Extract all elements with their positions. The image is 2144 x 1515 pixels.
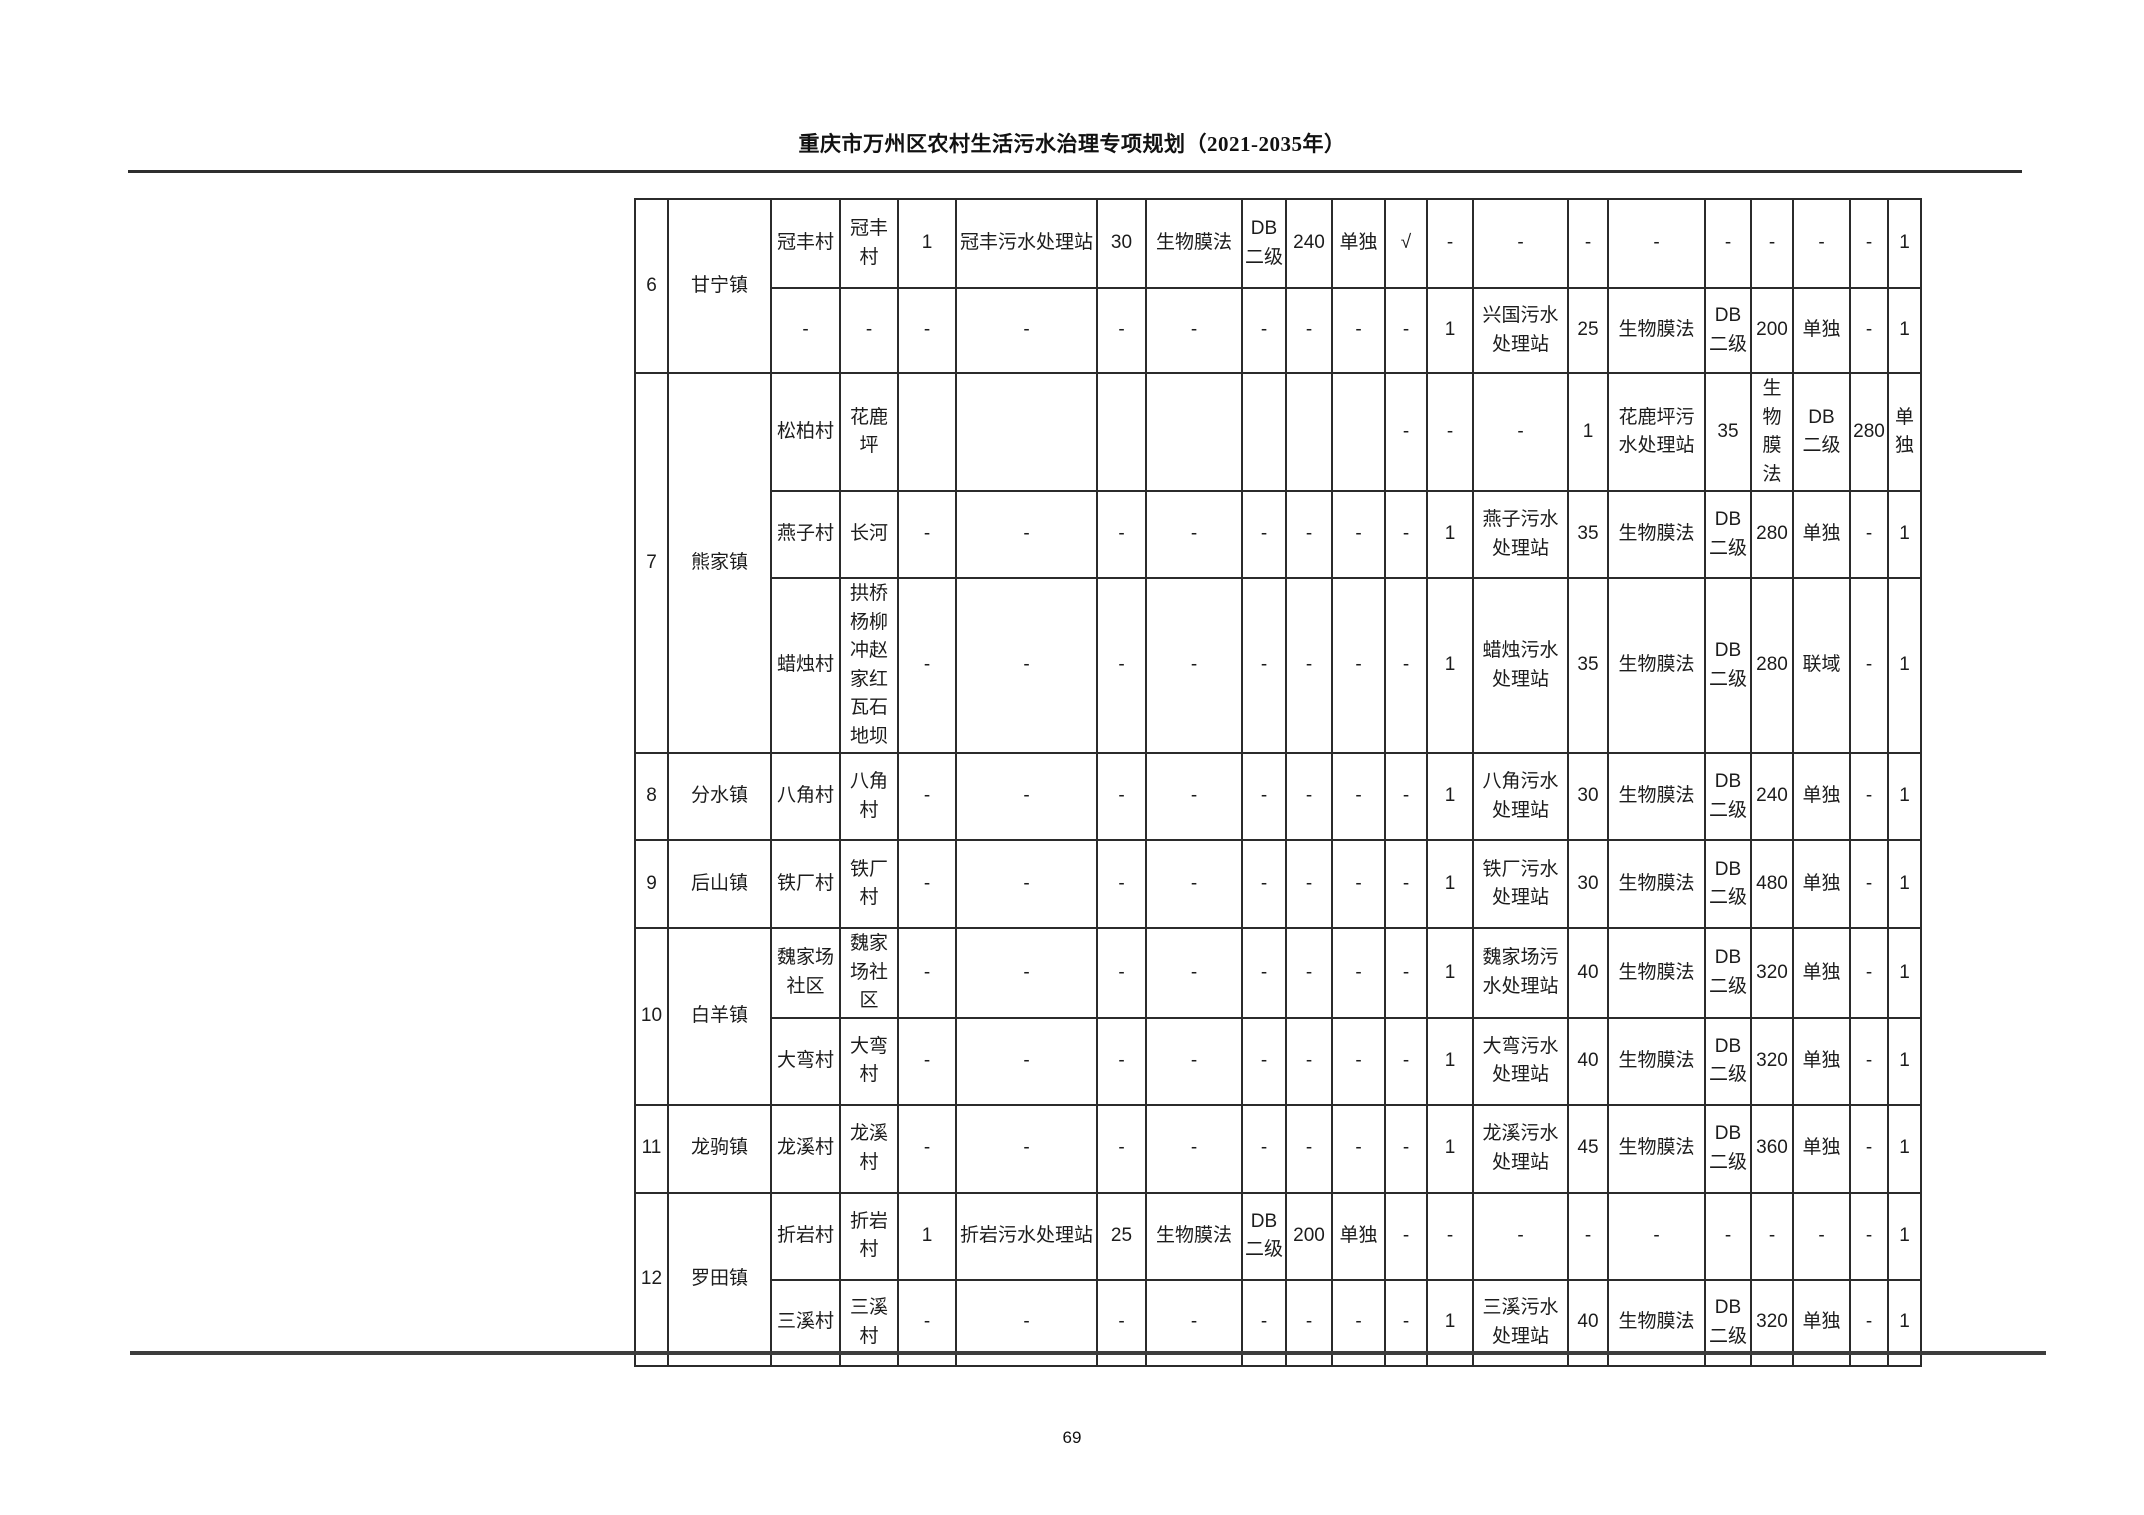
table-cell: - — [1385, 1018, 1427, 1105]
table-cell: - — [1146, 1018, 1242, 1105]
table-cell: - — [1705, 1193, 1751, 1280]
table-row: 7熊家镇松柏村花鹿坪---1花鹿坪污水处理站35生物膜法DB 二级280单独 — [635, 373, 1921, 491]
table-cell: - — [898, 288, 956, 373]
table-cell: - — [1473, 1193, 1568, 1280]
table-cell: - — [1097, 1105, 1146, 1193]
table-cell: - — [1146, 491, 1242, 578]
table-cell: 松柏村 — [771, 373, 840, 491]
table-cell: - — [956, 840, 1097, 928]
table-cell — [1286, 373, 1332, 491]
table-cell: 生物膜法 — [1608, 840, 1705, 928]
table-cell: 生物膜法 — [1146, 199, 1242, 288]
table-cell: DB 二级 — [1705, 491, 1751, 578]
town-cell: 分水镇 — [668, 753, 771, 840]
table-cell: - — [1332, 753, 1385, 840]
table-cell: 1 — [1427, 491, 1473, 578]
table-cell: - — [1427, 1193, 1473, 1280]
table-cell — [1242, 373, 1286, 491]
table-cell: 折岩污水处理站 — [956, 1193, 1097, 1280]
table-cell — [1332, 373, 1385, 491]
table-cell: 冠丰村 — [771, 199, 840, 288]
table-cell: 1 — [898, 1193, 956, 1280]
table-cell: DB 二级 — [1705, 578, 1751, 753]
table-cell: 1 — [1888, 578, 1921, 753]
table-row: 蜡烛村拱桥杨柳冲赵家红瓦石地坝--------1蜡烛污水处理站35生物膜法DB … — [635, 578, 1921, 753]
table-cell: 单独 — [1793, 1018, 1850, 1105]
table-cell: 35 — [1568, 491, 1608, 578]
table-cell: 花鹿坪污水处理站 — [1608, 373, 1705, 491]
table-cell: 1 — [1888, 288, 1921, 373]
table-cell: - — [1242, 928, 1286, 1018]
table-cell: - — [1332, 288, 1385, 373]
table-cell: - — [1286, 753, 1332, 840]
town-cell: 后山镇 — [668, 840, 771, 928]
table-cell: - — [1850, 840, 1888, 928]
table-cell: - — [1427, 373, 1473, 491]
table-cell: 单独 — [1793, 288, 1850, 373]
table-cell: 龙溪村 — [771, 1105, 840, 1193]
table-cell: - — [1332, 1105, 1385, 1193]
table-cell: 280 — [1751, 491, 1793, 578]
table-cell: - — [1097, 1018, 1146, 1105]
table-cell: - — [1146, 840, 1242, 928]
table-cell: 480 — [1751, 840, 1793, 928]
table-row: 9后山镇铁厂村铁厂村--------1铁厂污水处理站30生物膜法DB 二级480… — [635, 840, 1921, 928]
town-cell: 罗田镇 — [668, 1193, 771, 1366]
table-cell: - — [771, 288, 840, 373]
table-row: 6甘宁镇冠丰村冠丰村1冠丰污水处理站30生物膜法DB 二级240单独√-----… — [635, 199, 1921, 288]
table-cell: - — [956, 1018, 1097, 1105]
row-number-cell: 9 — [635, 840, 668, 928]
table-cell: - — [1385, 1105, 1427, 1193]
row-number-cell: 8 — [635, 753, 668, 840]
table-cell: - — [1850, 1193, 1888, 1280]
table-cell: - — [956, 1105, 1097, 1193]
table-cell: - — [1427, 199, 1473, 288]
table-cell: 魏家场污水处理站 — [1473, 928, 1568, 1018]
table-cell: 铁厂村 — [840, 840, 898, 928]
table-cell: 单独 — [1793, 1105, 1850, 1193]
table-cell: 1 — [1888, 928, 1921, 1018]
table-cell: - — [1608, 1193, 1705, 1280]
table-cell: 单独 — [1793, 928, 1850, 1018]
table-row: 11龙驹镇龙溪村龙溪村--------1龙溪污水处理站45生物膜法DB 二级36… — [635, 1105, 1921, 1193]
page-number: 69 — [0, 1428, 2144, 1448]
table-cell: - — [898, 928, 956, 1018]
table-cell: 魏家场社区 — [840, 928, 898, 1018]
table-cell: - — [956, 288, 1097, 373]
table-cell: - — [956, 578, 1097, 753]
table-cell: 长河 — [840, 491, 898, 578]
table-cell: 单独 — [1793, 753, 1850, 840]
table-cell: 单独 — [1793, 840, 1850, 928]
table-cell: - — [1793, 199, 1850, 288]
table-cell: DB 二级 — [1242, 1193, 1286, 1280]
table-cell: - — [1242, 491, 1286, 578]
table-cell: 联域 — [1793, 578, 1850, 753]
table-cell: 1 — [1888, 491, 1921, 578]
table-cell: 1 — [1568, 373, 1608, 491]
table-row: 12罗田镇折岩村折岩村1折岩污水处理站25生物膜法DB 二级200单独-----… — [635, 1193, 1921, 1280]
table-cell: - — [1332, 1018, 1385, 1105]
table-cell: 1 — [1427, 1105, 1473, 1193]
table-cell: DB 二级 — [1705, 1105, 1751, 1193]
table-cell: 铁厂村 — [771, 840, 840, 928]
table-cell: √ — [1385, 199, 1427, 288]
table-cell: DB 二级 — [1242, 199, 1286, 288]
table-cell: - — [898, 1105, 956, 1193]
table-cell: 1 — [1427, 288, 1473, 373]
table-cell: - — [1385, 1193, 1427, 1280]
table-row: 10白羊镇魏家场社区魏家场社区--------1魏家场污水处理站40生物膜法DB… — [635, 928, 1921, 1018]
table-cell: 龙溪污水处理站 — [1473, 1105, 1568, 1193]
table-cell: - — [1850, 928, 1888, 1018]
sewage-plan-table: 6甘宁镇冠丰村冠丰村1冠丰污水处理站30生物膜法DB 二级240单独√-----… — [634, 198, 1922, 1367]
table-cell: - — [1097, 578, 1146, 753]
table-cell: 45 — [1568, 1105, 1608, 1193]
document-page: 重庆市万州区农村生活污水治理专项规划（2021-2035年） 6甘宁镇冠丰村冠丰… — [0, 0, 2144, 1515]
table-cell: - — [1332, 928, 1385, 1018]
table-cell: - — [1286, 288, 1332, 373]
table-cell: 大弯村 — [840, 1018, 898, 1105]
table-cell: 冠丰村 — [840, 199, 898, 288]
table-cell: 1 — [1427, 840, 1473, 928]
table-cell: 生物膜法 — [1608, 928, 1705, 1018]
footer-rule — [130, 1351, 2046, 1355]
table-cell: - — [1146, 753, 1242, 840]
table-cell: 1 — [1888, 840, 1921, 928]
row-number-cell: 10 — [635, 928, 668, 1105]
table-cell: - — [1473, 199, 1568, 288]
table-cell: 生物膜法 — [1608, 1105, 1705, 1193]
table-row: 大弯村大弯村--------1大弯污水处理站40生物膜法DB 二级320单独-1 — [635, 1018, 1921, 1105]
table-cell: 30 — [1097, 199, 1146, 288]
table-row: 燕子村长河--------1燕子污水处理站35生物膜法DB 二级280单独-1 — [635, 491, 1921, 578]
table-cell: - — [1850, 199, 1888, 288]
table-cell: 280 — [1850, 373, 1888, 491]
table-cell: - — [1705, 199, 1751, 288]
table-cell: 1 — [1888, 1193, 1921, 1280]
table-cell: 35 — [1705, 373, 1751, 491]
table-cell: DB 二级 — [1705, 753, 1751, 840]
table-cell: DB 二级 — [1705, 288, 1751, 373]
table-cell: - — [1568, 199, 1608, 288]
table-cell: 40 — [1568, 1018, 1608, 1105]
table-cell: DB 二级 — [1705, 928, 1751, 1018]
document-title: 重庆市万州区农村生活污水治理专项规划（2021-2035年） — [0, 128, 2144, 158]
table-cell: 1 — [1888, 1018, 1921, 1105]
table-cell: - — [1242, 840, 1286, 928]
table-cell: - — [1385, 373, 1427, 491]
table-cell: - — [1242, 288, 1286, 373]
table-cell: 兴国污水处理站 — [1473, 288, 1568, 373]
table-cell: 1 — [1888, 753, 1921, 840]
table-cell: - — [1332, 578, 1385, 753]
table-cell: 1 — [1427, 928, 1473, 1018]
table-cell: 280 — [1751, 578, 1793, 753]
table-cell: - — [1242, 753, 1286, 840]
table-cell: 360 — [1751, 1105, 1793, 1193]
table-body: 6甘宁镇冠丰村冠丰村1冠丰污水处理站30生物膜法DB 二级240单独√-----… — [635, 199, 1921, 1366]
table-cell: - — [1385, 753, 1427, 840]
table-cell: 40 — [1568, 928, 1608, 1018]
header-rule — [128, 170, 2022, 173]
table-cell: - — [956, 753, 1097, 840]
table-cell: - — [1850, 288, 1888, 373]
table-cell — [1097, 373, 1146, 491]
table-cell: 生物膜法 — [1608, 491, 1705, 578]
table-cell: - — [1751, 1193, 1793, 1280]
table-cell: - — [1332, 840, 1385, 928]
table-cell: 燕子污水处理站 — [1473, 491, 1568, 578]
table-cell: - — [1332, 491, 1385, 578]
table-cell: - — [1850, 578, 1888, 753]
table-cell: 拱桥杨柳冲赵家红瓦石地坝 — [840, 578, 898, 753]
table-cell: - — [1385, 578, 1427, 753]
table-cell: - — [1850, 1105, 1888, 1193]
table-cell: - — [956, 491, 1097, 578]
table-cell: - — [1097, 753, 1146, 840]
town-cell: 甘宁镇 — [668, 199, 771, 373]
table-cell: 1 — [1427, 1018, 1473, 1105]
table-cell: 铁厂污水处理站 — [1473, 840, 1568, 928]
table-cell: - — [1473, 373, 1568, 491]
table-cell: - — [1097, 928, 1146, 1018]
table-cell: DB 二级 — [1705, 1018, 1751, 1105]
table-cell — [1146, 373, 1242, 491]
table-cell: 单独 — [1793, 491, 1850, 578]
town-cell: 熊家镇 — [668, 373, 771, 753]
town-cell: 龙驹镇 — [668, 1105, 771, 1193]
table-cell: 30 — [1568, 753, 1608, 840]
table-cell: - — [1608, 199, 1705, 288]
table-cell: - — [1385, 928, 1427, 1018]
table-cell: 冠丰污水处理站 — [956, 199, 1097, 288]
table-cell: 生物膜法 — [1751, 373, 1793, 491]
table-cell: - — [1242, 578, 1286, 753]
table-cell: - — [1850, 753, 1888, 840]
table-cell: - — [1286, 491, 1332, 578]
table-cell: 魏家场社区 — [771, 928, 840, 1018]
table-cell: 1 — [1888, 1105, 1921, 1193]
table-cell: 单独 — [1888, 373, 1921, 491]
table-cell: 1 — [1888, 199, 1921, 288]
town-cell: 白羊镇 — [668, 928, 771, 1105]
table-cell: 生物膜法 — [1608, 753, 1705, 840]
table-cell: 生物膜法 — [1608, 578, 1705, 753]
table-cell: 30 — [1568, 840, 1608, 928]
table-cell: 花鹿坪 — [840, 373, 898, 491]
table-cell: 1 — [1427, 753, 1473, 840]
table-cell: - — [1568, 1193, 1608, 1280]
table-cell: DB 二级 — [1793, 373, 1850, 491]
table-cell: 生物膜法 — [1608, 1018, 1705, 1105]
table-cell: 龙溪村 — [840, 1105, 898, 1193]
table-cell: - — [898, 1018, 956, 1105]
table-cell: 八角污水处理站 — [1473, 753, 1568, 840]
table-cell: DB 二级 — [1705, 840, 1751, 928]
table-cell: - — [1097, 491, 1146, 578]
table-cell: 大弯村 — [771, 1018, 840, 1105]
table-cell: - — [1146, 578, 1242, 753]
table-cell: 240 — [1286, 199, 1332, 288]
table-cell: - — [1146, 1105, 1242, 1193]
table-cell: - — [840, 288, 898, 373]
table-cell: 320 — [1751, 1018, 1793, 1105]
table-cell: - — [898, 753, 956, 840]
table-cell: - — [1286, 578, 1332, 753]
table-cell: - — [1286, 928, 1332, 1018]
table-cell: 大弯污水处理站 — [1473, 1018, 1568, 1105]
table-cell: 35 — [1568, 578, 1608, 753]
table-cell: - — [1146, 928, 1242, 1018]
table-cell: - — [1146, 288, 1242, 373]
table-cell: 单独 — [1332, 1193, 1385, 1280]
table-cell: - — [1286, 840, 1332, 928]
table-cell: - — [898, 840, 956, 928]
table-row: ----------1兴国污水处理站25生物膜法DB 二级200单独-1 — [635, 288, 1921, 373]
table-cell: - — [1850, 1018, 1888, 1105]
row-number-cell: 12 — [635, 1193, 668, 1366]
table-cell: - — [1385, 840, 1427, 928]
table-cell: - — [1751, 199, 1793, 288]
table-cell: 八角村 — [771, 753, 840, 840]
table-cell — [956, 373, 1097, 491]
table-cell: 折岩村 — [840, 1193, 898, 1280]
table-cell: - — [1286, 1105, 1332, 1193]
table-cell: 25 — [1097, 1193, 1146, 1280]
table-cell: 生物膜法 — [1608, 288, 1705, 373]
table-cell: 25 — [1568, 288, 1608, 373]
table-cell: 1 — [1427, 578, 1473, 753]
table-cell: - — [1097, 840, 1146, 928]
table-cell — [898, 373, 956, 491]
table-container: 6甘宁镇冠丰村冠丰村1冠丰污水处理站30生物膜法DB 二级240单独√-----… — [634, 198, 1920, 1367]
table-cell: - — [1850, 491, 1888, 578]
table-cell: - — [1385, 288, 1427, 373]
table-cell: 燕子村 — [771, 491, 840, 578]
table-cell: 蜡烛村 — [771, 578, 840, 753]
table-cell: 200 — [1751, 288, 1793, 373]
table-cell: - — [1286, 1018, 1332, 1105]
table-cell: 200 — [1286, 1193, 1332, 1280]
table-cell: 折岩村 — [771, 1193, 840, 1280]
table-cell: 生物膜法 — [1146, 1193, 1242, 1280]
table-cell: - — [1242, 1018, 1286, 1105]
table-cell: - — [956, 928, 1097, 1018]
table-cell: 1 — [898, 199, 956, 288]
table-cell: 240 — [1751, 753, 1793, 840]
table-cell: 八角村 — [840, 753, 898, 840]
row-number-cell: 11 — [635, 1105, 668, 1193]
table-cell: - — [1242, 1105, 1286, 1193]
table-cell: 单独 — [1332, 199, 1385, 288]
table-cell: - — [1385, 491, 1427, 578]
table-cell: - — [898, 578, 956, 753]
table-cell: - — [1097, 288, 1146, 373]
table-cell: 320 — [1751, 928, 1793, 1018]
table-cell: 蜡烛污水处理站 — [1473, 578, 1568, 753]
table-cell: - — [898, 491, 956, 578]
table-cell: - — [1793, 1193, 1850, 1280]
row-number-cell: 6 — [635, 199, 668, 373]
table-row: 8分水镇八角村八角村--------1八角污水处理站30生物膜法DB 二级240… — [635, 753, 1921, 840]
row-number-cell: 7 — [635, 373, 668, 753]
